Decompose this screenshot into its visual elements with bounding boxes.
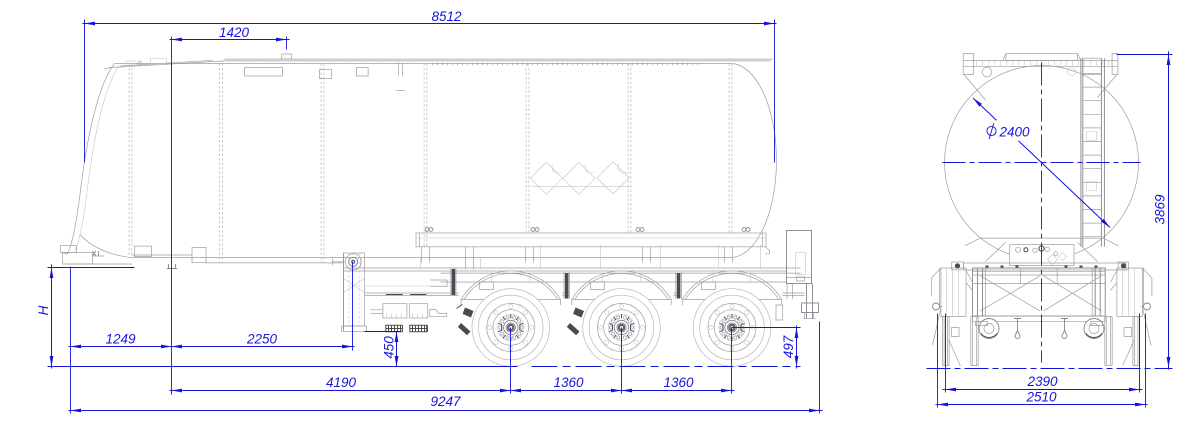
svg-text:497: 497: [781, 335, 796, 358]
svg-text:4190: 4190: [326, 375, 357, 390]
svg-text:2250: 2250: [246, 332, 278, 347]
svg-text:9247: 9247: [430, 394, 461, 409]
svg-text:1249: 1249: [105, 332, 136, 347]
svg-text:1420: 1420: [219, 25, 250, 40]
svg-text:450: 450: [381, 336, 396, 359]
svg-text:2390: 2390: [1026, 374, 1058, 389]
svg-text:3869: 3869: [1153, 194, 1168, 225]
svg-text:8512: 8512: [431, 9, 462, 24]
svg-text:1360: 1360: [553, 375, 584, 390]
svg-text:2400: 2400: [998, 124, 1030, 139]
svg-text:2510: 2510: [1025, 389, 1057, 404]
svg-text:H: H: [36, 305, 51, 315]
svg-text:1360: 1360: [663, 375, 694, 390]
